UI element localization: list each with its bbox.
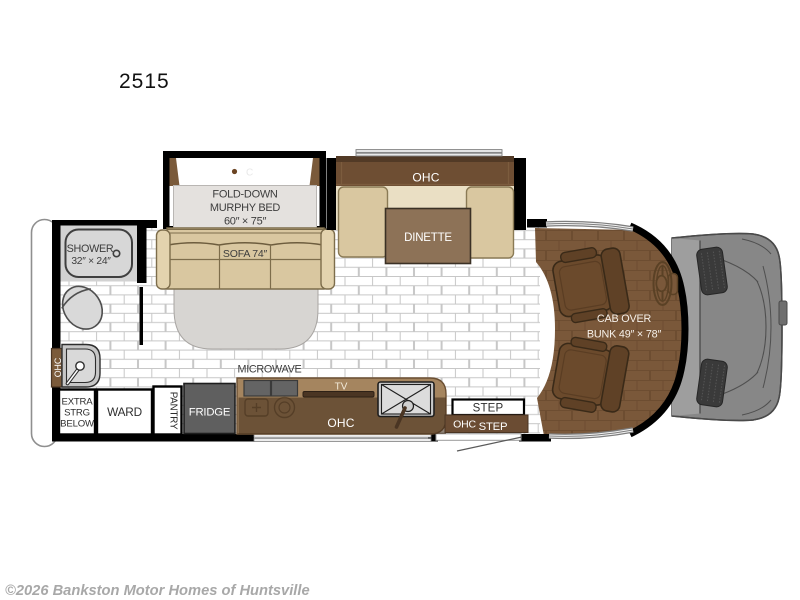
svg-text:OHC: OHC [327, 416, 354, 430]
svg-text:PANTRY: PANTRY [168, 392, 179, 430]
svg-text:C: C [246, 168, 253, 179]
svg-text:SOFA 74″: SOFA 74″ [223, 248, 268, 260]
svg-text:EXTRA: EXTRA [62, 397, 94, 408]
svg-text:MICROWAVE: MICROWAVE [238, 364, 302, 376]
svg-text:FOLD-DOWN: FOLD-DOWN [212, 189, 277, 201]
svg-text:MURPHY BED: MURPHY BED [210, 202, 280, 214]
svg-text:BELOW: BELOW [60, 419, 95, 430]
svg-text:CAB OVER: CAB OVER [597, 313, 652, 325]
svg-text:STRG: STRG [64, 408, 90, 419]
svg-text:2515: 2515 [119, 70, 170, 93]
svg-text:STEP: STEP [479, 421, 508, 433]
svg-text:SHOWER: SHOWER [67, 243, 114, 255]
svg-text:OHC: OHC [412, 171, 439, 185]
svg-text:DINETTE: DINETTE [404, 232, 452, 244]
svg-text:32″ × 24″: 32″ × 24″ [71, 256, 111, 267]
svg-text:OHC: OHC [453, 419, 476, 431]
svg-text:TV: TV [335, 382, 348, 393]
svg-text:©2026 Bankston Motor Homes of: ©2026 Bankston Motor Homes of Huntsville [5, 583, 310, 599]
svg-text:60″ × 75″: 60″ × 75″ [224, 216, 267, 228]
svg-text:BUNK 49″ × 78″: BUNK 49″ × 78″ [587, 329, 662, 341]
svg-text:FRIDGE: FRIDGE [189, 407, 231, 419]
svg-text:WARD: WARD [107, 405, 142, 419]
svg-text:STEP: STEP [473, 403, 504, 415]
